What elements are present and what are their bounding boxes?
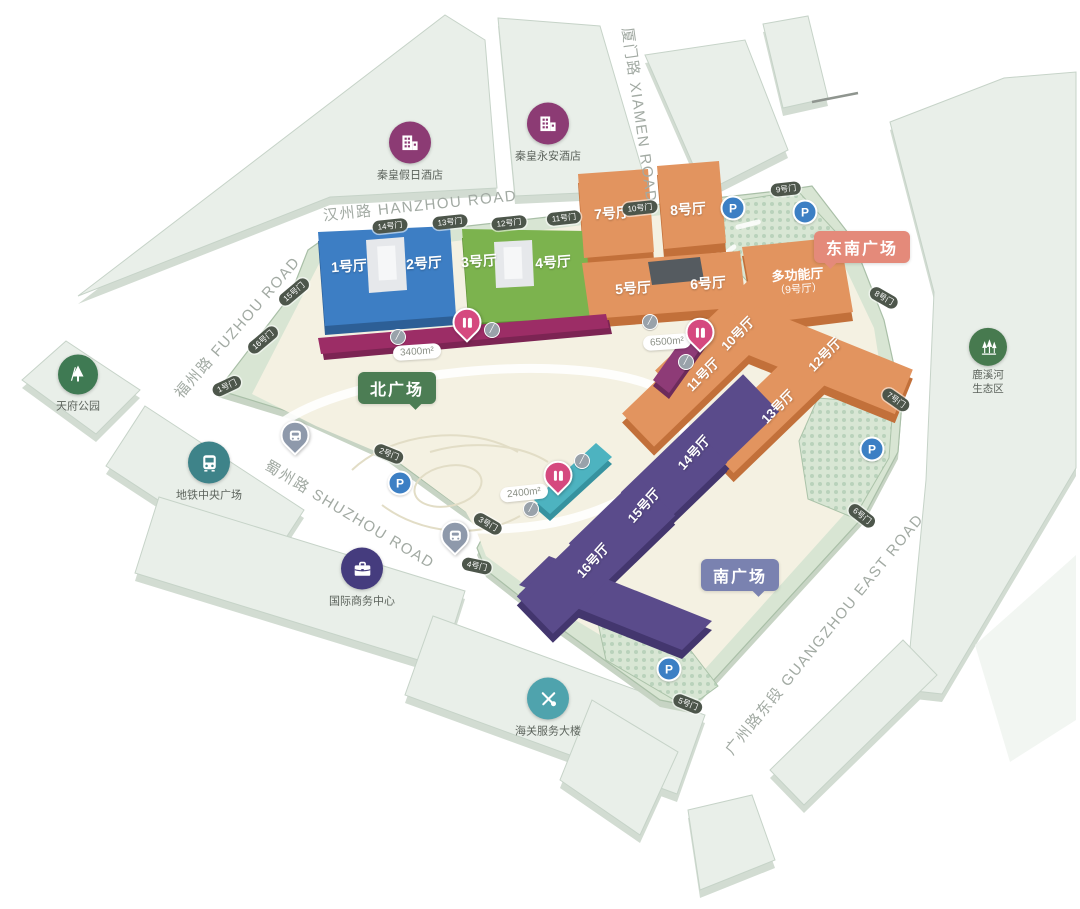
landmark-business-center: 国际商务中心 bbox=[329, 548, 395, 609]
hall-label-4: 4号厅 bbox=[534, 251, 571, 273]
landmark-label: 鹿溪河 生态区 bbox=[972, 369, 1004, 396]
hall-label-3: 3号厅 bbox=[460, 250, 497, 272]
parking-icon: P bbox=[657, 657, 682, 682]
landmark-label: 国际商务中心 bbox=[329, 593, 395, 609]
landmark-metro-plaza: 地铁中央广场 bbox=[176, 442, 242, 503]
eco-trees-icon bbox=[969, 328, 1007, 366]
landmark-label: 地铁中央广场 bbox=[176, 487, 242, 503]
fork-knife-icon bbox=[696, 327, 705, 337]
block-south-2 bbox=[688, 795, 775, 890]
parking-icon: P bbox=[793, 200, 818, 225]
landmark-label: 秦皇永安酒店 bbox=[515, 148, 581, 164]
block-small-parallelogram bbox=[763, 16, 828, 108]
park-tree-icon bbox=[58, 355, 98, 395]
hall-label-1: 1号厅 bbox=[330, 255, 367, 277]
landmark-hotel-holiday: 秦皇假日酒店 bbox=[377, 122, 443, 183]
landmark-hotel-yongan: 秦皇永安酒店 bbox=[515, 103, 581, 164]
landmark-label: 海关服务大楼 bbox=[515, 723, 581, 739]
plaza-bubble-north: 北广场 bbox=[358, 372, 436, 404]
bus-icon bbox=[450, 530, 461, 540]
escalator-icon: ╱ bbox=[642, 314, 658, 330]
eco-label-line2: 生态区 bbox=[972, 383, 1004, 397]
fork-knife-icon bbox=[463, 317, 472, 327]
parking-icon: P bbox=[388, 471, 413, 496]
eco-label-line1: 鹿溪河 bbox=[972, 369, 1004, 383]
expo-campus-map: 汉州路 HANZHOU ROAD 厦门路 XIAMEN ROAD 福州路 FUZ… bbox=[0, 0, 1080, 909]
hotel-icon bbox=[389, 122, 431, 164]
metro-icon bbox=[188, 442, 230, 484]
fork-knife-icon bbox=[554, 470, 563, 480]
escalator-icon: ╱ bbox=[678, 354, 694, 370]
hotel-icon bbox=[527, 103, 569, 145]
escalator-icon: ╱ bbox=[574, 453, 590, 469]
customs-icon bbox=[527, 678, 569, 720]
bus-icon bbox=[290, 430, 301, 440]
hall-label-multi: 多功能厅 （9号厅） bbox=[771, 266, 825, 299]
hall-label-6: 6号厅 bbox=[689, 272, 726, 294]
landmark-label: 天府公园 bbox=[56, 398, 100, 414]
plaza-bubble-south: 南广场 bbox=[701, 559, 779, 591]
hall-label-2: 2号厅 bbox=[405, 252, 442, 274]
briefcase-icon bbox=[341, 548, 383, 590]
landmark-customs-building: 海关服务大楼 bbox=[515, 678, 581, 739]
landmark-tianfu-park: 天府公园 bbox=[56, 355, 100, 414]
escalator-icon: ╱ bbox=[390, 329, 406, 345]
hall-label-5: 5号厅 bbox=[614, 277, 651, 299]
escalator-icon: ╱ bbox=[484, 322, 500, 338]
plaza-bubble-southeast: 东南广场 bbox=[814, 231, 910, 263]
escalator-icon: ╱ bbox=[523, 501, 539, 517]
hall-label-8: 8号厅 bbox=[669, 198, 706, 220]
parking-icon: P bbox=[721, 196, 746, 221]
landmark-luxi-eco: 鹿溪河 生态区 bbox=[969, 328, 1007, 396]
landmark-label: 秦皇假日酒店 bbox=[377, 167, 443, 183]
parking-icon: P bbox=[860, 437, 885, 462]
